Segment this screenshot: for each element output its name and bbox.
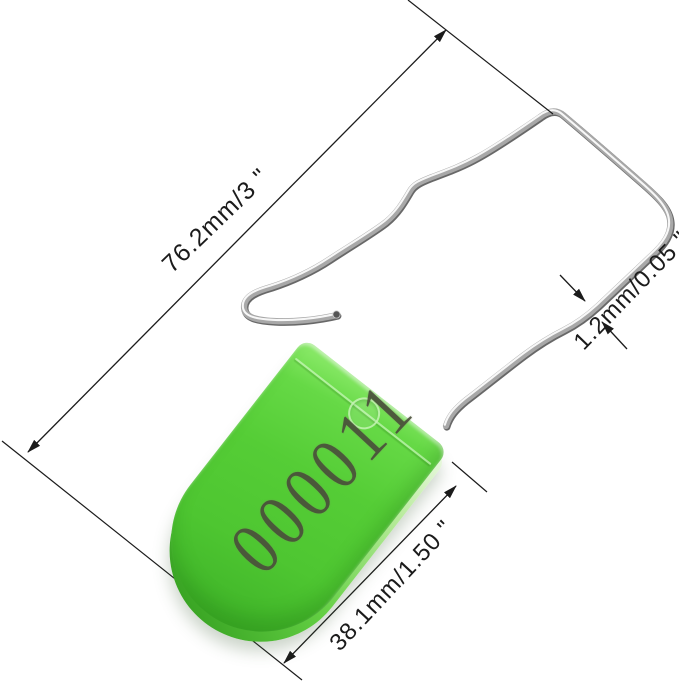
extension-line-tag-corner — [452, 462, 487, 492]
wire-cut-end — [333, 311, 340, 318]
wire-thickness-arrow-upper — [560, 275, 585, 301]
product-photo: 000011 76.2mm/3 " 1.2mm/0.05 " 38.1mm/1.… — [0, 0, 679, 700]
extension-line-top — [408, 0, 553, 114]
